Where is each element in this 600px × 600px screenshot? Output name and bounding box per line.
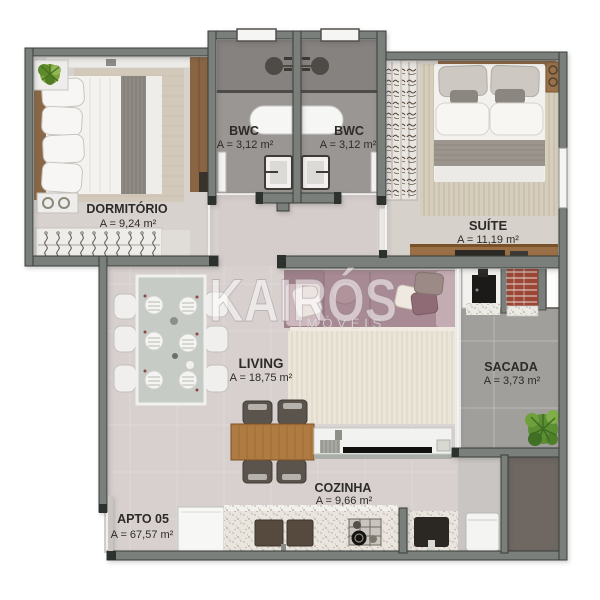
- svg-text:APTO 05: APTO 05: [117, 512, 169, 526]
- svg-text:A = 3,12 m²: A = 3,12 m²: [217, 139, 274, 151]
- svg-text:A = 3,12 m²: A = 3,12 m²: [320, 139, 377, 151]
- svg-text:LIVING: LIVING: [238, 356, 283, 371]
- svg-text:IMÓVEIS: IMÓVEIS: [298, 316, 386, 331]
- svg-text:COZINHA: COZINHA: [315, 481, 372, 495]
- svg-text:BWC: BWC: [334, 124, 364, 138]
- svg-text:A = 11,19 m²: A = 11,19 m²: [457, 234, 519, 246]
- svg-text:DORMITÓRIO: DORMITÓRIO: [86, 201, 168, 216]
- svg-text:A = 18,75 m²: A = 18,75 m²: [230, 372, 293, 384]
- svg-text:A = 3,73 m²: A = 3,73 m²: [484, 375, 541, 387]
- svg-text:A = 67,57 m²: A = 67,57 m²: [111, 529, 174, 541]
- svg-text:A = 9,66 m²: A = 9,66 m²: [316, 495, 373, 507]
- svg-text:SUÍTE: SUÍTE: [469, 218, 508, 233]
- svg-text:SACADA: SACADA: [484, 360, 537, 374]
- svg-text:A = 9,24 m²: A = 9,24 m²: [100, 218, 157, 230]
- svg-text:BWC: BWC: [229, 124, 259, 138]
